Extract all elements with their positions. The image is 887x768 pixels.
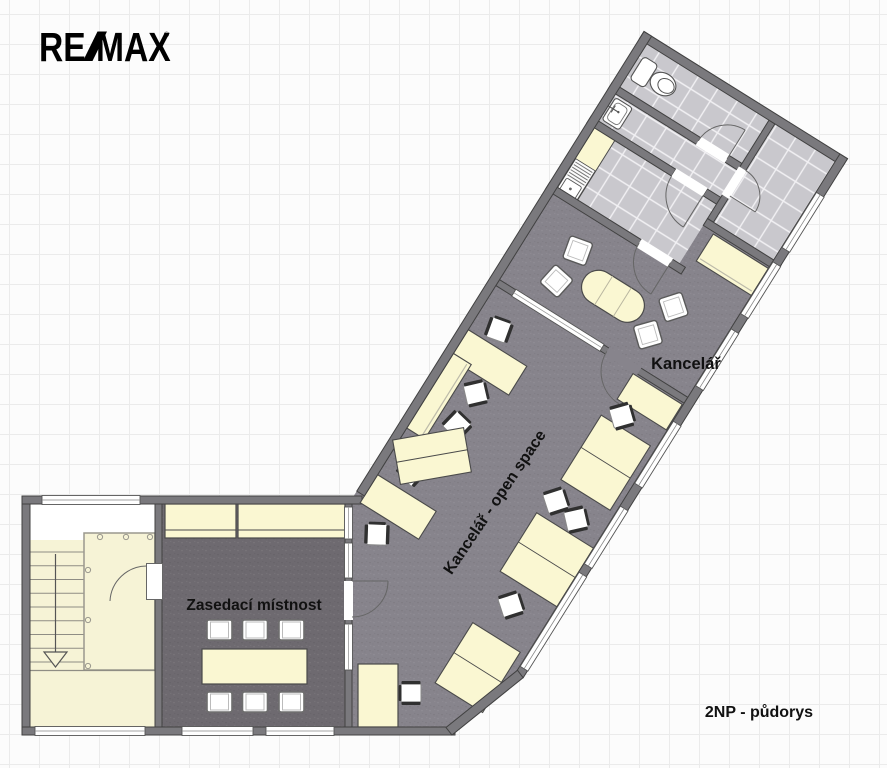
- svg-text:RE: RE: [39, 24, 86, 70]
- svg-text:Kancelář: Kancelář: [651, 355, 721, 373]
- svg-text:2NP - půdorys: 2NP - půdorys: [705, 704, 813, 721]
- svg-text:®: ®: [164, 31, 170, 39]
- svg-text:MAX: MAX: [96, 24, 171, 70]
- svg-text:Zasedací místnost: Zasedací místnost: [186, 597, 321, 614]
